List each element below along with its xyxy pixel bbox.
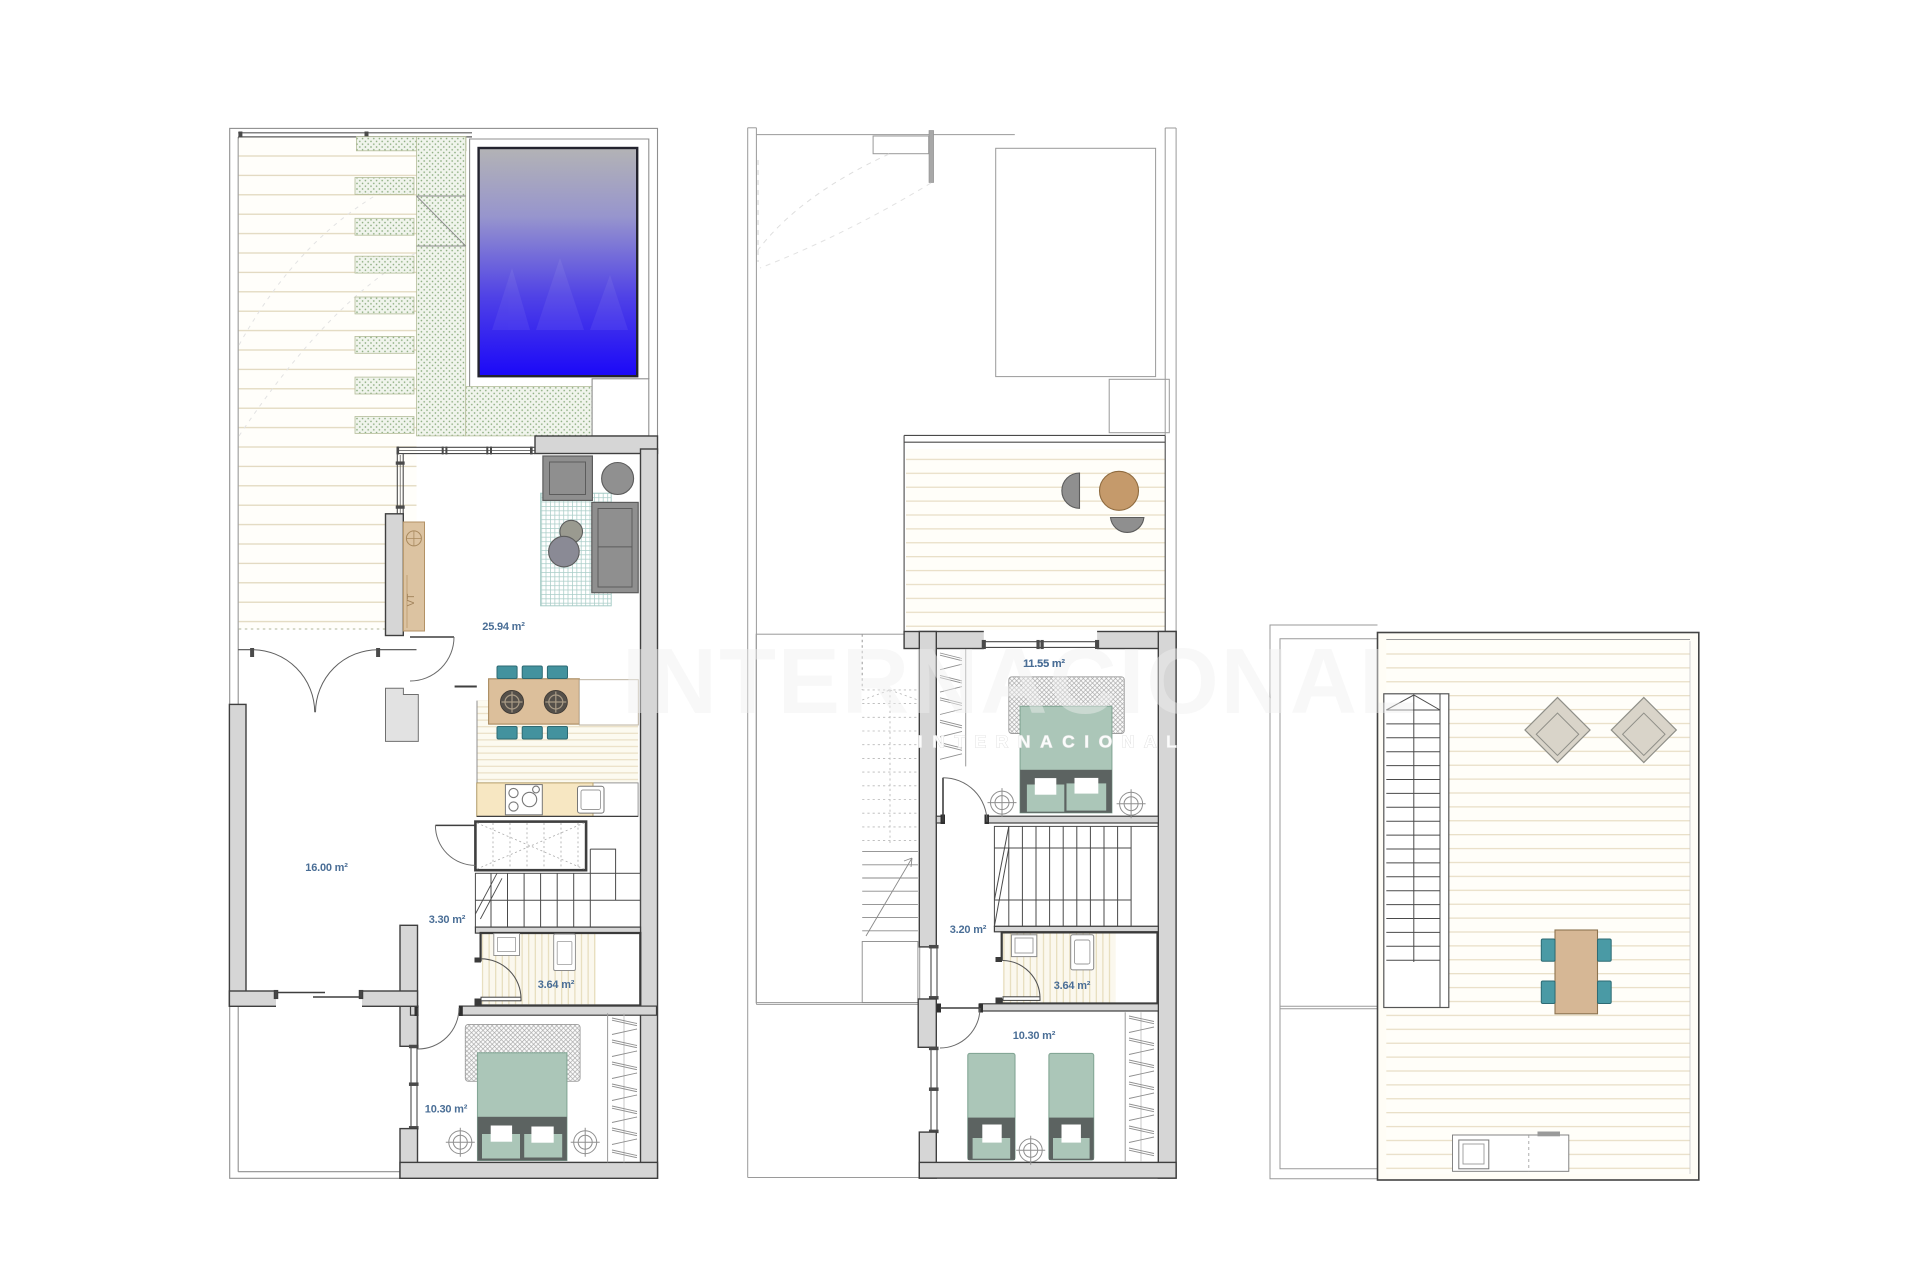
svg-text:VT: VT (406, 594, 417, 607)
svg-text:3.30 m²: 3.30 m² (429, 914, 466, 926)
svg-text:16.00 m²: 16.00 m² (305, 862, 348, 874)
svg-text:11.55 m²: 11.55 m² (1023, 658, 1065, 670)
svg-text:3.64 m²: 3.64 m² (538, 979, 575, 991)
svg-text:10.30 m²: 10.30 m² (425, 1104, 468, 1116)
svg-text:10.30 m²: 10.30 m² (1013, 1030, 1056, 1042)
svg-text:25.94 m²: 25.94 m² (482, 621, 525, 633)
svg-text:3.64 m²: 3.64 m² (1054, 980, 1091, 992)
svg-text:INTERNACIONAL: INTERNACIONAL (622, 629, 1418, 733)
svg-text:3.20 m²: 3.20 m² (950, 924, 987, 936)
svg-text:INTERNACIONAL: INTERNACIONAL (918, 732, 1186, 752)
